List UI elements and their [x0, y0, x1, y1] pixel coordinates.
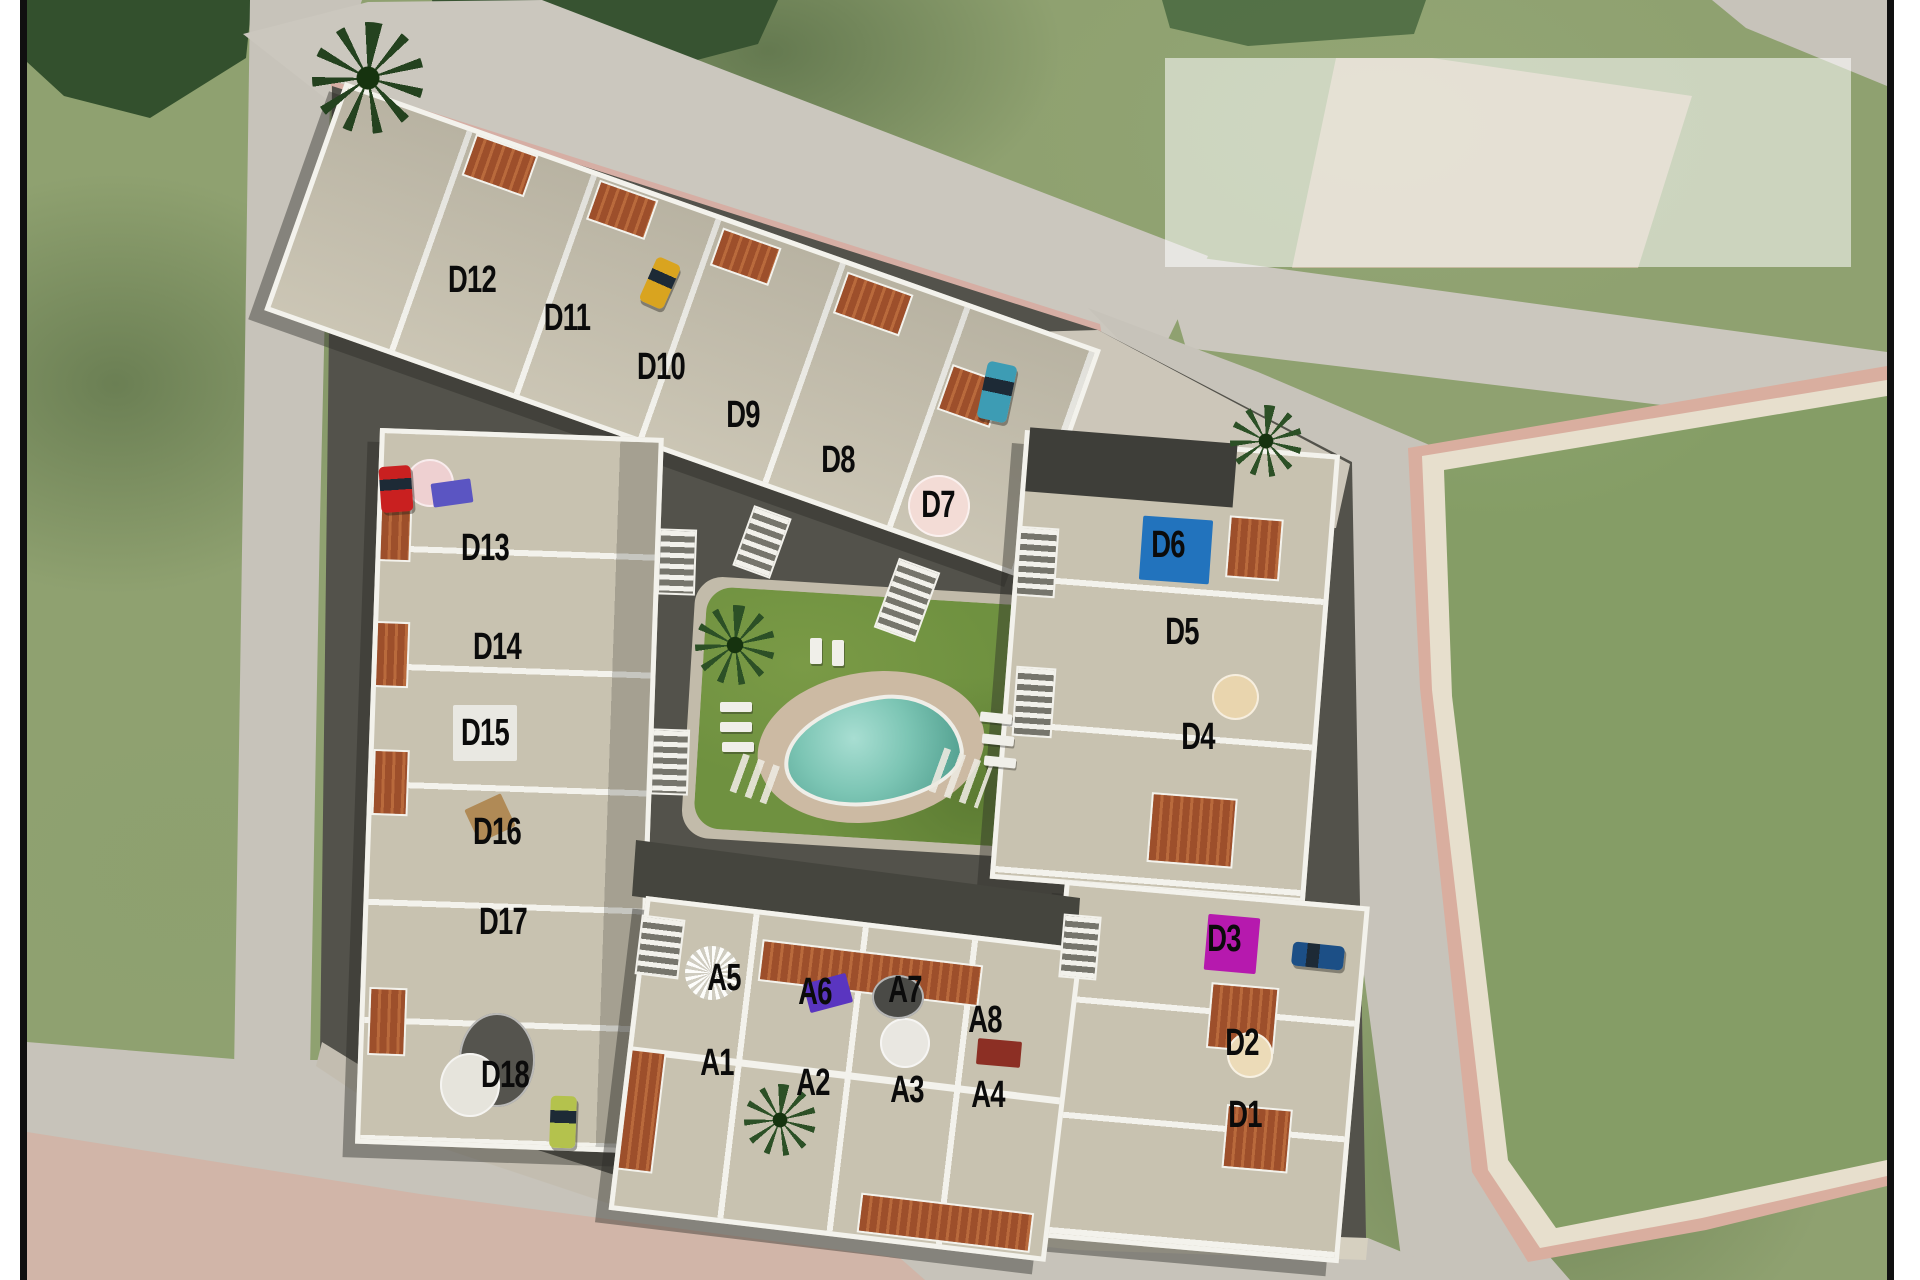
unit-label-d10: D10 [637, 348, 685, 386]
unit-label-d14: D14 [473, 628, 521, 666]
unit-label-d11: D11 [544, 299, 591, 337]
unit-label-d13: D13 [461, 529, 509, 567]
labels-layer: D12D11D10D9D8D7D6D5D4D3D2D1D13D14D15D16D… [0, 0, 1920, 1280]
unit-label-d5: D5 [1165, 613, 1199, 651]
unit-label-a1: A1 [700, 1044, 734, 1082]
unit-label-d6: D6 [1151, 526, 1185, 564]
unit-label-d2: D2 [1225, 1024, 1259, 1062]
unit-label-d1: D1 [1228, 1096, 1262, 1134]
unit-label-d9: D9 [726, 396, 760, 434]
unit-label-d4: D4 [1181, 718, 1215, 756]
unit-label-d15: D15 [461, 714, 509, 752]
unit-label-d3: D3 [1207, 920, 1241, 958]
unit-label-d16: D16 [473, 813, 521, 851]
unit-label-a6: A6 [798, 973, 832, 1011]
site-plan-screenshot: D12D11D10D9D8D7D6D5D4D3D2D1D13D14D15D16D… [0, 0, 1920, 1280]
unit-label-d7: D7 [921, 486, 955, 524]
frame-margin-right [1894, 0, 1920, 1280]
unit-label-a5: A5 [707, 959, 741, 997]
unit-label-a8: A8 [968, 1001, 1002, 1039]
unit-label-d17: D17 [479, 903, 527, 941]
unit-label-a3: A3 [890, 1071, 924, 1109]
frame-border-right [1887, 0, 1894, 1280]
unit-label-a7: A7 [888, 971, 922, 1009]
unit-label-d12: D12 [448, 261, 496, 299]
unit-label-d8: D8 [821, 441, 855, 479]
frame-margin-left [0, 0, 20, 1280]
unit-label-a4: A4 [971, 1076, 1005, 1114]
unit-label-a2: A2 [796, 1064, 830, 1102]
unit-label-d18: D18 [481, 1056, 529, 1094]
frame-border-left [20, 0, 27, 1280]
